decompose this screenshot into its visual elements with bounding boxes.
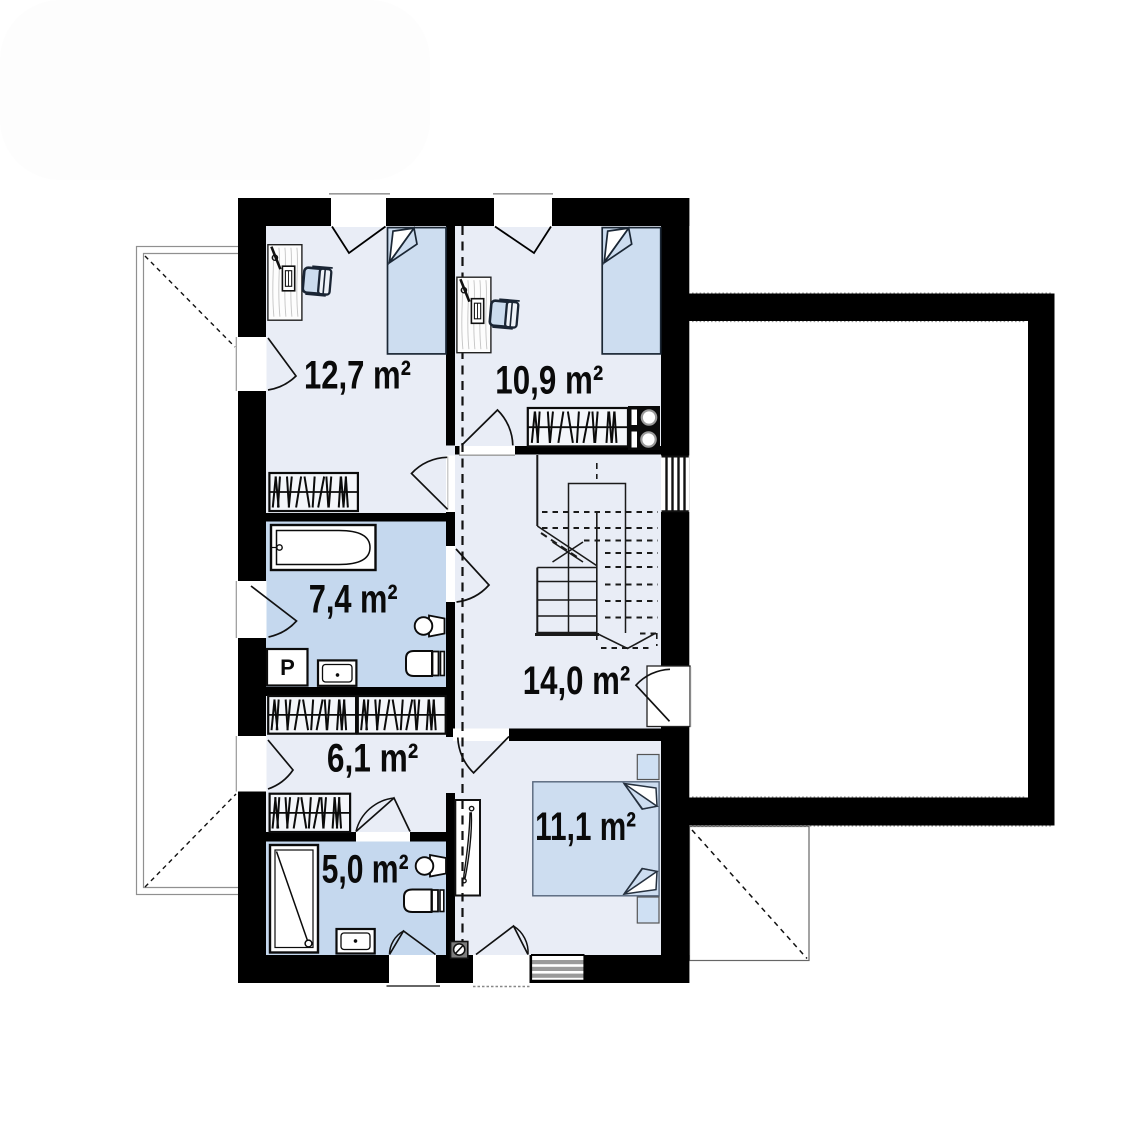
- svg-text:12,7 m²: 12,7 m²: [304, 354, 411, 398]
- svg-text:6,1 m²: 6,1 m²: [327, 737, 419, 781]
- svg-text:P: P: [280, 655, 295, 680]
- svg-text:5,0 m²: 5,0 m²: [322, 848, 409, 892]
- svg-text:7,4 m²: 7,4 m²: [309, 578, 398, 622]
- svg-text:11,1 m²: 11,1 m²: [535, 805, 636, 849]
- svg-text:14,0 m²: 14,0 m²: [523, 659, 631, 703]
- svg-text:10,9 m²: 10,9 m²: [495, 359, 603, 403]
